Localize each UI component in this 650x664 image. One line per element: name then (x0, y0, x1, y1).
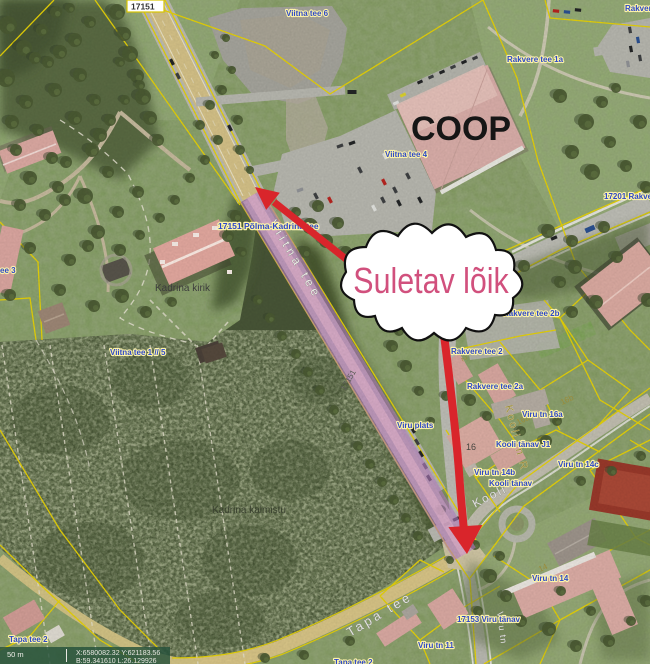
svg-text:17153 Viru tänav: 17153 Viru tänav (457, 615, 521, 624)
svg-text:Tapa tee 2: Tapa tee 2 (9, 635, 48, 644)
svg-text:16: 16 (466, 442, 476, 452)
svg-text:Kooli tänav: Kooli tänav (489, 479, 533, 488)
svg-text:Rakvere tee 2: Rakvere tee 2 (451, 347, 503, 356)
svg-text:Rakvere tee 2a: Rakvere tee 2a (467, 382, 524, 391)
svg-text:Viru tn 14c: Viru tn 14c (558, 460, 599, 469)
svg-text:Rakvere tee 1a: Rakvere tee 1a (507, 55, 564, 64)
svg-text:Viru tn 16a: Viru tn 16a (522, 410, 563, 419)
svg-text:Viru tn 11: Viru tn 11 (418, 641, 454, 650)
svg-text:Viru tn 14b: Viru tn 14b (474, 468, 515, 477)
svg-text:Suletav lõik: Suletav lõik (353, 262, 509, 302)
svg-text:ee 3: ee 3 (0, 266, 16, 275)
svg-text:Viitna tee 4: Viitna tee 4 (385, 150, 428, 159)
svg-text:Tapa tee 2: Tapa tee 2 (334, 658, 373, 664)
svg-text:X:6580082.32 Y:621183.56: X:6580082.32 Y:621183.56 (76, 650, 160, 657)
svg-text:Kadrina kalmistu: Kadrina kalmistu (212, 505, 286, 516)
svg-text:17151: 17151 (131, 2, 155, 12)
svg-text:Rakvere t: Rakvere t (625, 4, 650, 13)
svg-text:Viitna tee 1 // 5: Viitna tee 1 // 5 (110, 348, 166, 357)
svg-text:Kadrina kirik: Kadrina kirik (155, 283, 211, 294)
svg-text:17201 Rakve: 17201 Rakve (604, 192, 650, 201)
svg-text:Kooli tänav J1: Kooli tänav J1 (496, 440, 551, 449)
svg-text:B:59.341610 L:26.129926: B:59.341610 L:26.129926 (76, 658, 157, 664)
svg-text:COOP: COOP (411, 110, 511, 148)
svg-text:Viitna tee 6: Viitna tee 6 (286, 9, 329, 18)
svg-text:50 m: 50 m (7, 650, 24, 659)
svg-text:Viru plats: Viru plats (397, 421, 434, 430)
svg-text:Viru tn 14: Viru tn 14 (532, 574, 569, 583)
